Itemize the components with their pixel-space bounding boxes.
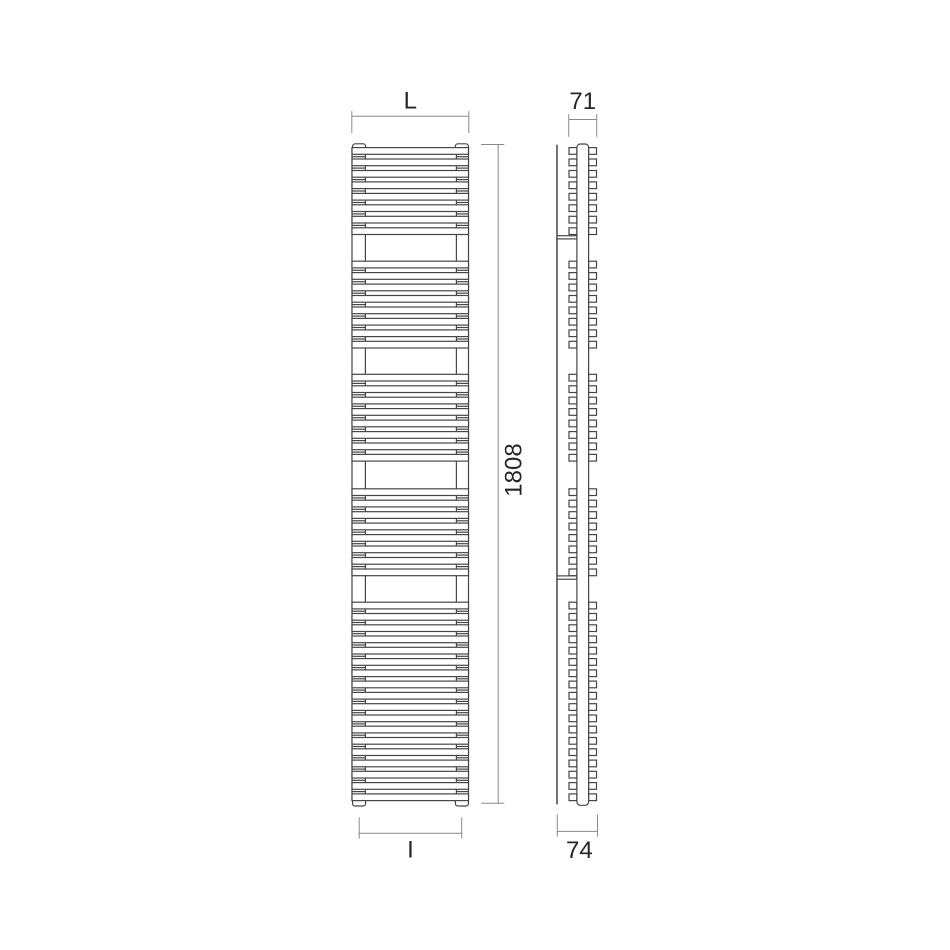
svg-text:L: L <box>404 88 417 115</box>
svg-text:1808: 1808 <box>500 443 527 496</box>
svg-text:I: I <box>407 836 414 863</box>
svg-text:71: 71 <box>569 88 596 115</box>
svg-text:74: 74 <box>566 837 593 864</box>
